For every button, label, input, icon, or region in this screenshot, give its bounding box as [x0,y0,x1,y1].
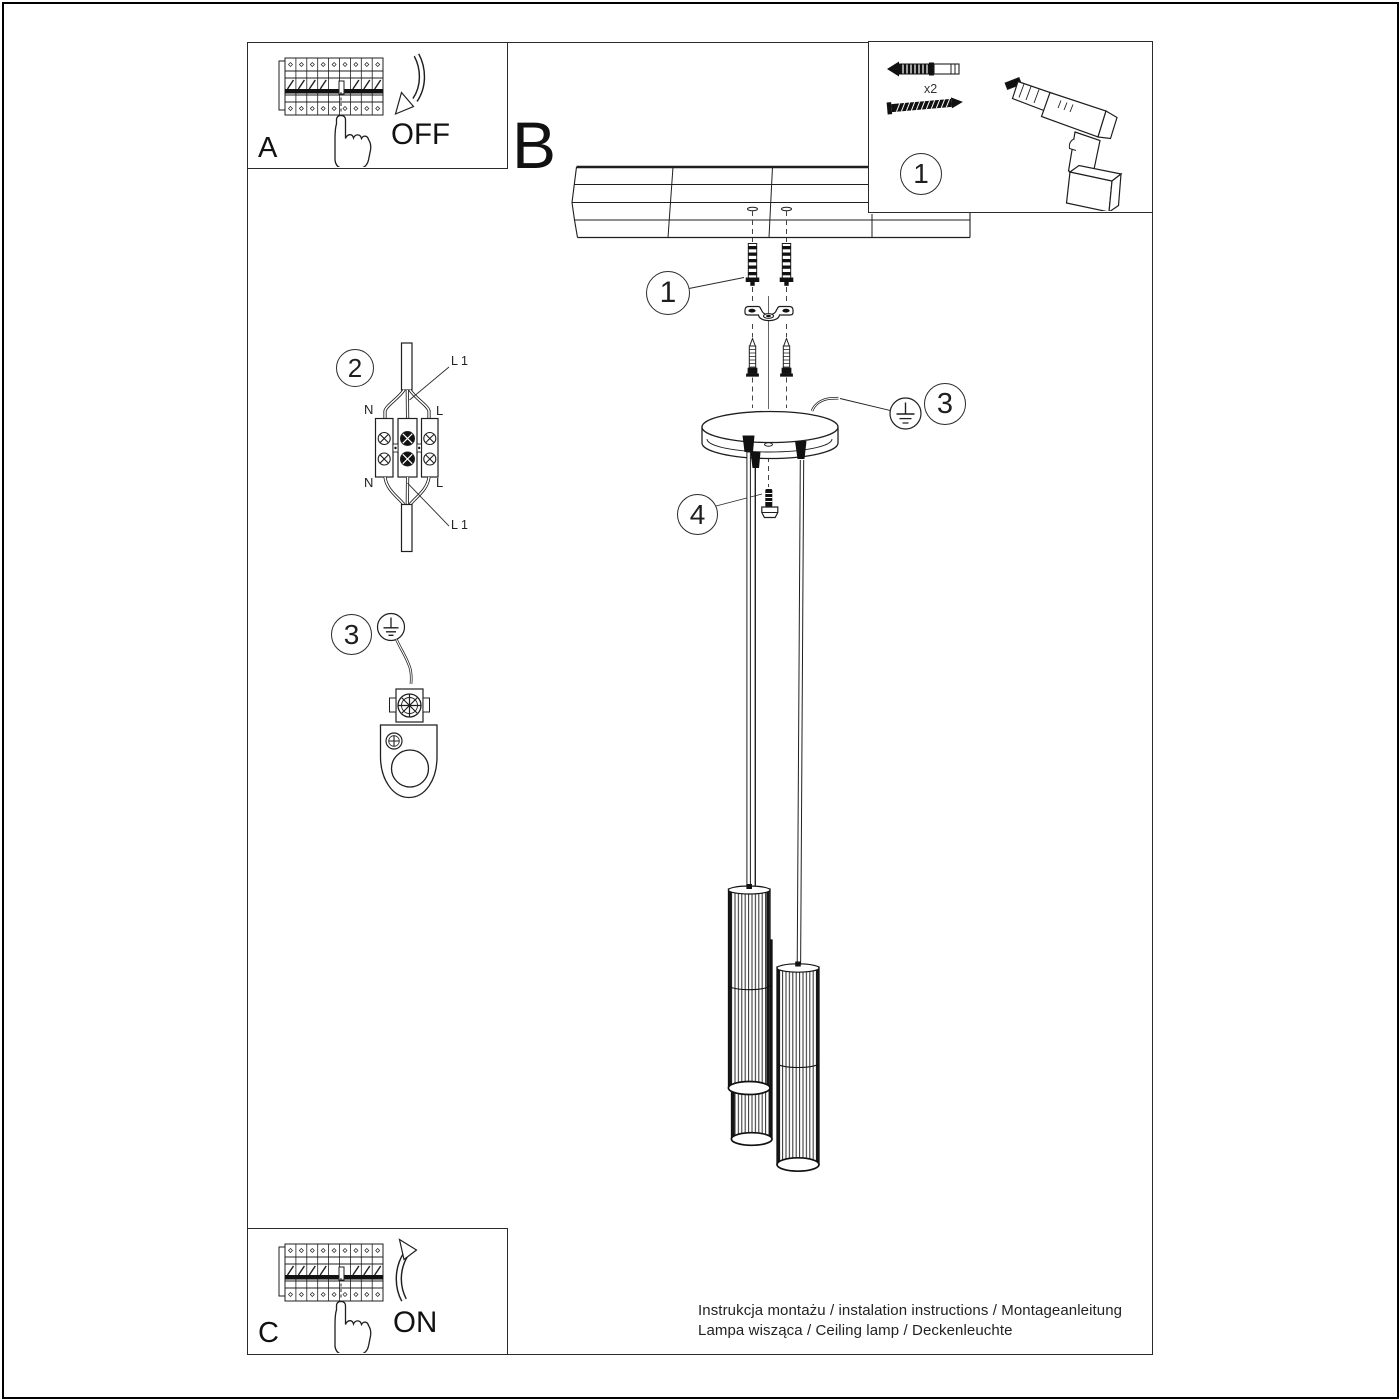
line1-bottom-label: L 1 [451,519,468,532]
ground-symbol-icon [840,398,921,429]
footer-title-line2: Lampa wisząca / Ceiling lamp / Deckenleu… [698,1322,1013,1339]
neutral-bottom-label: N [364,476,373,489]
drill-icon [1005,78,1121,212]
callout-1-plugs: 1 [646,271,690,315]
pendant-cord-icon [797,460,804,967]
callout-3-ground-detail: 3 [331,614,372,655]
mounting-screw-icon [746,339,792,377]
curved-arrow-up-icon [399,1240,417,1301]
screw-icon [887,96,964,115]
pointing-hand-icon [335,1302,371,1354]
pendant-shade-icon [728,884,770,1095]
live-bottom-label: L [436,476,443,489]
wall-plug-icon [746,244,794,286]
pendant-shade-icon [777,962,819,1172]
line1-top-label: L 1 [451,355,468,368]
step-c-panel: C ON [247,1228,508,1355]
off-label: OFF [391,120,450,150]
breaker-panel-icon [279,58,383,115]
tools-panel: x2 1 [868,41,1153,213]
terminal-block-diagram [376,343,450,552]
callout-1-tools: 1 [900,153,942,195]
breaker-off-art [248,43,506,167]
ground-terminal-diagram [378,614,438,798]
diagram-art [0,0,1400,1400]
callout-3-ground-canopy: 3 [924,383,966,425]
breaker-panel-icon [279,1244,383,1301]
on-label: ON [393,1308,437,1338]
pointing-hand-icon [335,116,371,168]
quantity-label: x2 [924,83,937,96]
step-c-label: C [258,1319,279,1348]
step-a-label: A [258,134,277,163]
curved-arrow-down-icon [396,55,422,114]
cord-grip-icon [743,436,755,453]
cord-grip-icon [751,452,761,468]
callout-2-wiring: 2 [336,349,374,387]
callout-4-screw: 4 [677,494,718,535]
canopy-icon [702,398,839,468]
wall-plug-icon [887,62,959,77]
live-top-label: L [436,404,443,417]
footer-title-line1: Instrukcja montażu / instalation instruc… [698,1302,1122,1319]
breaker-on-art [248,1229,506,1353]
step-b-label: B [512,112,556,178]
mounting-bracket-icon [745,307,793,321]
pendant-cord-icon [747,452,751,890]
instruction-sheet: A OFF [0,0,1400,1400]
neutral-top-label: N [364,403,373,416]
step-a-panel: A OFF [247,42,508,169]
canopy-screw-icon [762,489,778,518]
